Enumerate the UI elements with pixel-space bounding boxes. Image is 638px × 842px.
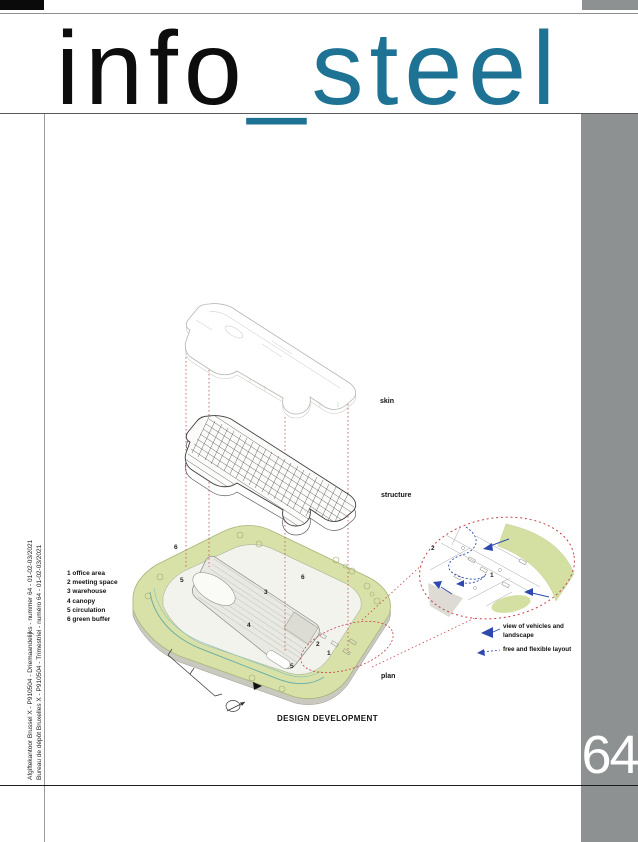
magazine-cover-page: info_steel 64 Afgiftekantoor Brussel X -… bbox=[0, 0, 638, 842]
plan-marker: 3 bbox=[264, 589, 268, 596]
footer-rule bbox=[0, 785, 638, 786]
layer-label-skin: skin bbox=[380, 398, 394, 405]
legend-item: 2 meeting space bbox=[67, 578, 118, 587]
inset-note-vehicles: view of vehicles and landscape bbox=[503, 623, 575, 640]
title-black-part: info bbox=[56, 11, 248, 127]
legend-item: 3 warehouse bbox=[67, 587, 118, 596]
legend-item: 5 circulation bbox=[67, 606, 118, 615]
magazine-title: info_steel bbox=[56, 17, 561, 121]
legend-item: 1 office area bbox=[67, 569, 118, 578]
dashed-arrow-icon bbox=[477, 649, 500, 656]
inset-marker: 2 bbox=[431, 545, 435, 552]
legend-item: 4 canopy bbox=[67, 597, 118, 606]
plan-marker: 2 bbox=[316, 641, 320, 648]
legend-item: 6 green buffer bbox=[67, 615, 118, 624]
title-accent-part: _steel bbox=[248, 11, 562, 127]
plan-legend: 1 office area 2 meeting space 3 warehous… bbox=[67, 569, 118, 624]
north-arrow-icon bbox=[226, 701, 245, 712]
layer-label-structure: structure bbox=[381, 492, 411, 499]
plan-marker: 6 bbox=[301, 574, 305, 581]
plan-layer bbox=[133, 525, 390, 711]
plan-marker: 6 bbox=[174, 544, 178, 551]
inset-note-line: view of vehicles and bbox=[503, 623, 575, 632]
inset-note-layout: free and flexible layout bbox=[503, 646, 593, 655]
detail-inset bbox=[412, 506, 582, 629]
inset-marker: 1 bbox=[490, 572, 494, 579]
figure-caption: DESIGN DEVELOPMENT bbox=[277, 714, 378, 723]
plan-marker: 5 bbox=[290, 663, 294, 670]
plan-marker: 5 bbox=[180, 577, 184, 584]
plan-marker: 1 bbox=[327, 650, 331, 657]
plan-marker: 4 bbox=[247, 622, 251, 629]
layer-label-plan: plan bbox=[381, 673, 395, 680]
solid-arrow-icon bbox=[481, 627, 500, 638]
inset-note-line: landscape bbox=[503, 632, 575, 641]
skin-layer bbox=[185, 304, 355, 418]
